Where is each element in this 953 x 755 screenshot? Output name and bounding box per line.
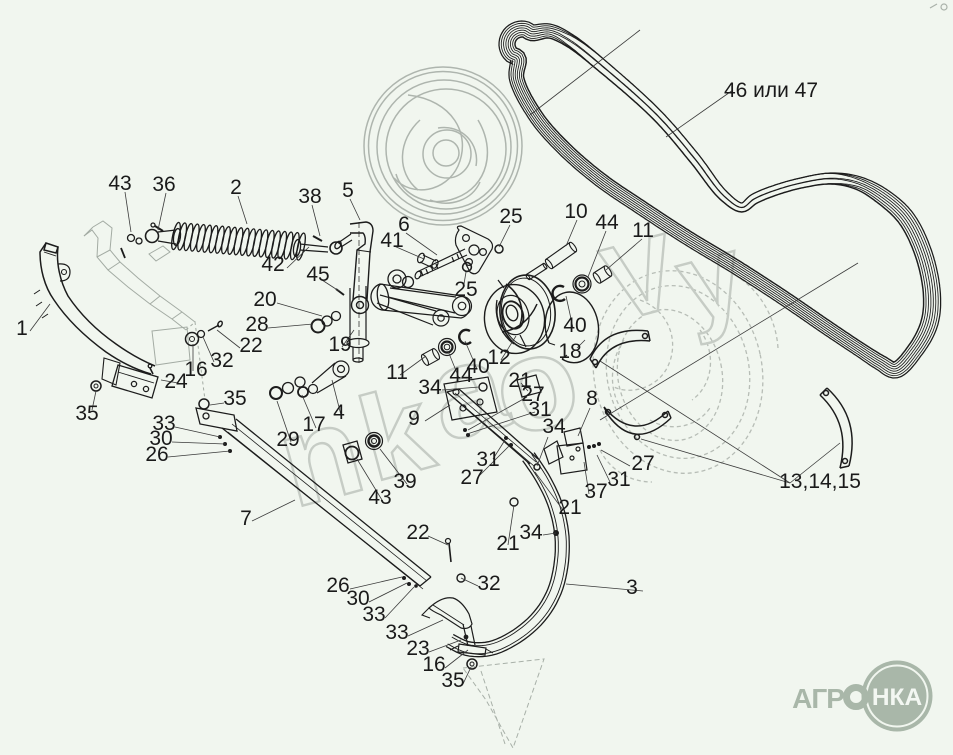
svg-text:44: 44 xyxy=(449,364,473,387)
svg-text:5: 5 xyxy=(342,179,354,202)
svg-text:43: 43 xyxy=(368,486,391,509)
svg-text:21: 21 xyxy=(558,496,581,519)
svg-text:45: 45 xyxy=(306,263,329,286)
svg-text:9: 9 xyxy=(408,407,420,430)
svg-text:39: 39 xyxy=(393,470,416,493)
svg-text:35: 35 xyxy=(223,387,246,410)
svg-text:11: 11 xyxy=(386,361,408,384)
svg-text:2: 2 xyxy=(230,176,242,199)
svg-text:22: 22 xyxy=(239,334,262,357)
svg-text:38: 38 xyxy=(298,185,321,208)
svg-text:29: 29 xyxy=(276,428,299,451)
svg-text:10: 10 xyxy=(564,200,587,223)
svg-text:34: 34 xyxy=(542,415,566,438)
svg-text:8: 8 xyxy=(586,387,598,410)
svg-text:34: 34 xyxy=(418,376,442,399)
svg-text:33: 33 xyxy=(362,603,385,626)
svg-text:26: 26 xyxy=(145,443,168,466)
svg-text:37: 37 xyxy=(584,480,607,503)
svg-text:32: 32 xyxy=(210,349,233,372)
svg-text:4: 4 xyxy=(333,401,345,424)
svg-text:28: 28 xyxy=(245,313,268,336)
svg-text:41: 41 xyxy=(380,229,403,252)
svg-text:25: 25 xyxy=(454,278,477,301)
svg-text:25: 25 xyxy=(499,205,522,228)
svg-text:18: 18 xyxy=(558,340,581,363)
svg-text:13,14,15: 13,14,15 xyxy=(779,470,861,493)
svg-text:1: 1 xyxy=(16,317,28,340)
svg-text:31: 31 xyxy=(607,468,630,491)
svg-text:34: 34 xyxy=(519,521,543,544)
svg-text:35: 35 xyxy=(75,402,98,425)
svg-text:21: 21 xyxy=(496,532,519,555)
svg-text:АГР: АГР xyxy=(792,683,844,714)
svg-text:36: 36 xyxy=(152,173,175,196)
svg-text:46 или 47: 46 или 47 xyxy=(724,79,818,102)
svg-text:7: 7 xyxy=(240,507,252,530)
svg-text:32: 32 xyxy=(477,572,500,595)
svg-text:20: 20 xyxy=(253,288,276,311)
svg-text:40: 40 xyxy=(563,314,586,337)
svg-text:27: 27 xyxy=(460,466,483,489)
svg-text:33: 33 xyxy=(385,621,408,644)
svg-text:НКА: НКА xyxy=(872,684,923,711)
svg-text:16: 16 xyxy=(184,358,207,381)
svg-text:11: 11 xyxy=(632,219,654,242)
svg-text:44: 44 xyxy=(595,211,619,234)
svg-text:35: 35 xyxy=(441,669,464,692)
svg-text:24: 24 xyxy=(164,370,188,393)
svg-text:19: 19 xyxy=(328,333,351,356)
svg-text:17: 17 xyxy=(302,413,325,436)
svg-text:42: 42 xyxy=(261,253,284,276)
svg-text:12: 12 xyxy=(487,346,510,369)
svg-text:43: 43 xyxy=(108,172,131,195)
svg-text:27: 27 xyxy=(631,452,654,475)
svg-text:22: 22 xyxy=(406,521,429,544)
svg-text:3: 3 xyxy=(626,576,638,599)
